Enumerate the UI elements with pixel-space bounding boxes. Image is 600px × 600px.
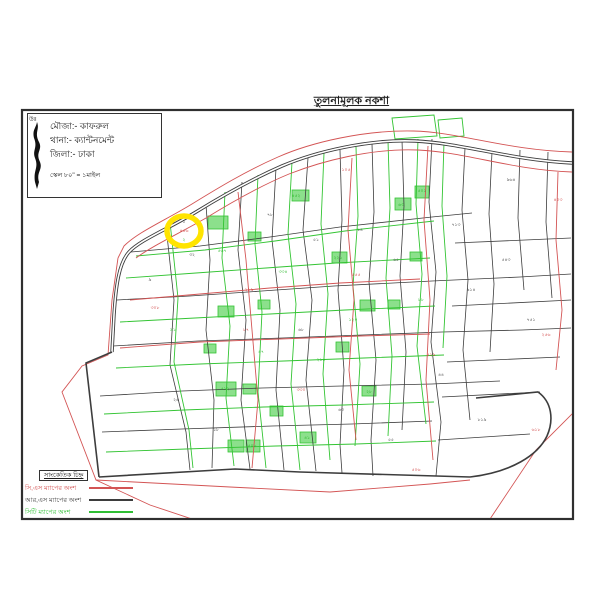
legend-title: সাংকেতিক চিহ্ন — [39, 470, 88, 481]
plot-fill — [218, 306, 234, 317]
plot-number: ৭৫১ — [527, 317, 536, 322]
plot-number: ২২১ — [334, 255, 343, 260]
plot-number: ৫১ — [313, 237, 319, 242]
page-title: তুলনামূলক নকশা — [287, 95, 416, 108]
plot-number: ২১৯ — [245, 287, 254, 292]
plot-number: ৮৭ — [243, 327, 249, 332]
map-info-box: উঃ মৌজা:- কাফরুল থানা:- ক্যান্টনমেন্ট জি… — [27, 113, 162, 198]
plot-number: ৩৩৪ — [279, 269, 288, 274]
info-text: মৌজা:- কাফরুল থানা:- ক্যান্টনমেন্ট জিলা:… — [44, 114, 114, 197]
plot-number: ৪৫৬ — [180, 228, 190, 233]
plot-fill — [208, 216, 228, 229]
plot-number: ৫৫ — [388, 437, 394, 442]
legend-label-city: সিটি ম্যাপের অংশ — [25, 507, 89, 518]
plot-number: ৪৭ — [258, 349, 264, 354]
plot-number: ৪১ — [304, 435, 310, 440]
plot-number: ৫৬৭ — [218, 248, 227, 253]
plot-number: ১০৫ — [342, 167, 351, 172]
info-thana: থানা:- ক্যান্টনমেন্ট — [50, 133, 114, 147]
plot-number: ১৪ — [357, 227, 363, 232]
plot-number: ৯১৪ — [467, 287, 476, 292]
map-sheet: ৯৩২৭৮৫১১৪৬৫৭১৩৯১৪৫৪৩৭৫১৮১৯৬৩১৮২৬৪৪৯৬৪৫৫৬… — [0, 0, 600, 600]
plot-number: ৫০১ — [418, 188, 427, 193]
plot-number: ৯ — [149, 277, 152, 282]
north-arrow: উঃ — [28, 114, 44, 197]
plot-number: ৬১৮ — [532, 427, 542, 432]
legend-row-cs: সি,এস ম্যাপের অংশ — [25, 482, 185, 494]
legend-row-city: সিটি ম্যাপের অংশ — [25, 506, 185, 518]
legend-label-cs: সি,এস ম্যাপের অংশ — [25, 483, 89, 494]
plot-number: ৪৪ — [438, 372, 444, 377]
legend-line-rs — [89, 499, 133, 501]
plot-number: ৭১৩ — [452, 222, 462, 227]
legend-label-rs: আর,এস ম্যাপের অংশ — [25, 495, 89, 506]
plot-number: ৫০৮ — [248, 443, 258, 448]
plot-number: ৩২ — [189, 252, 195, 257]
plot-number: ১২০ — [349, 317, 358, 322]
plot-number: ৫৫৫ — [352, 272, 361, 277]
plot-fill — [258, 300, 270, 309]
plot-number: ৯৬৪ — [507, 177, 516, 182]
plot-fill — [270, 406, 283, 416]
info-mouza: মৌজা:- কাফরুল — [50, 119, 114, 133]
plot-number: ২ — [183, 237, 186, 242]
plot-number: ৪০৩ — [554, 197, 564, 202]
plot-fill — [204, 344, 216, 353]
legend-line-cs — [89, 487, 133, 489]
plot-number: ৩৩০ — [297, 387, 306, 392]
info-zila: জিলা:- ঢাকা — [50, 147, 114, 161]
plot-number: ৫১২ — [221, 386, 230, 391]
plot-number: ২১৫ — [317, 357, 326, 362]
plot-fill — [228, 440, 244, 452]
info-scale: স্কেল ৮০" = ১মাইল — [50, 170, 114, 181]
plot-number: ৫৪৩ — [502, 257, 512, 262]
legend-row-rs: আর,এস ম্যাপের অংশ — [25, 494, 185, 506]
plot-number: ৬৫ — [393, 257, 399, 262]
legend: সাংকেতিক চিহ্ন সি,এস ম্যাপের অংশ আর,এস ম… — [25, 464, 185, 518]
north-arrow-icon — [31, 121, 43, 191]
plot-number: ৩০৮ — [151, 305, 161, 310]
legend-line-city — [89, 511, 133, 513]
plot-number: ৫২৯ — [427, 352, 436, 357]
plot-number: ৫০৬ — [412, 467, 422, 472]
plot-number: ৯১ — [170, 327, 176, 332]
plot-number: ৮১৯ — [478, 417, 487, 422]
plot-number: ২৫৬ — [542, 332, 552, 337]
plot-number: ১ — [183, 219, 186, 224]
plot-number: ৪৫২ — [292, 193, 301, 198]
